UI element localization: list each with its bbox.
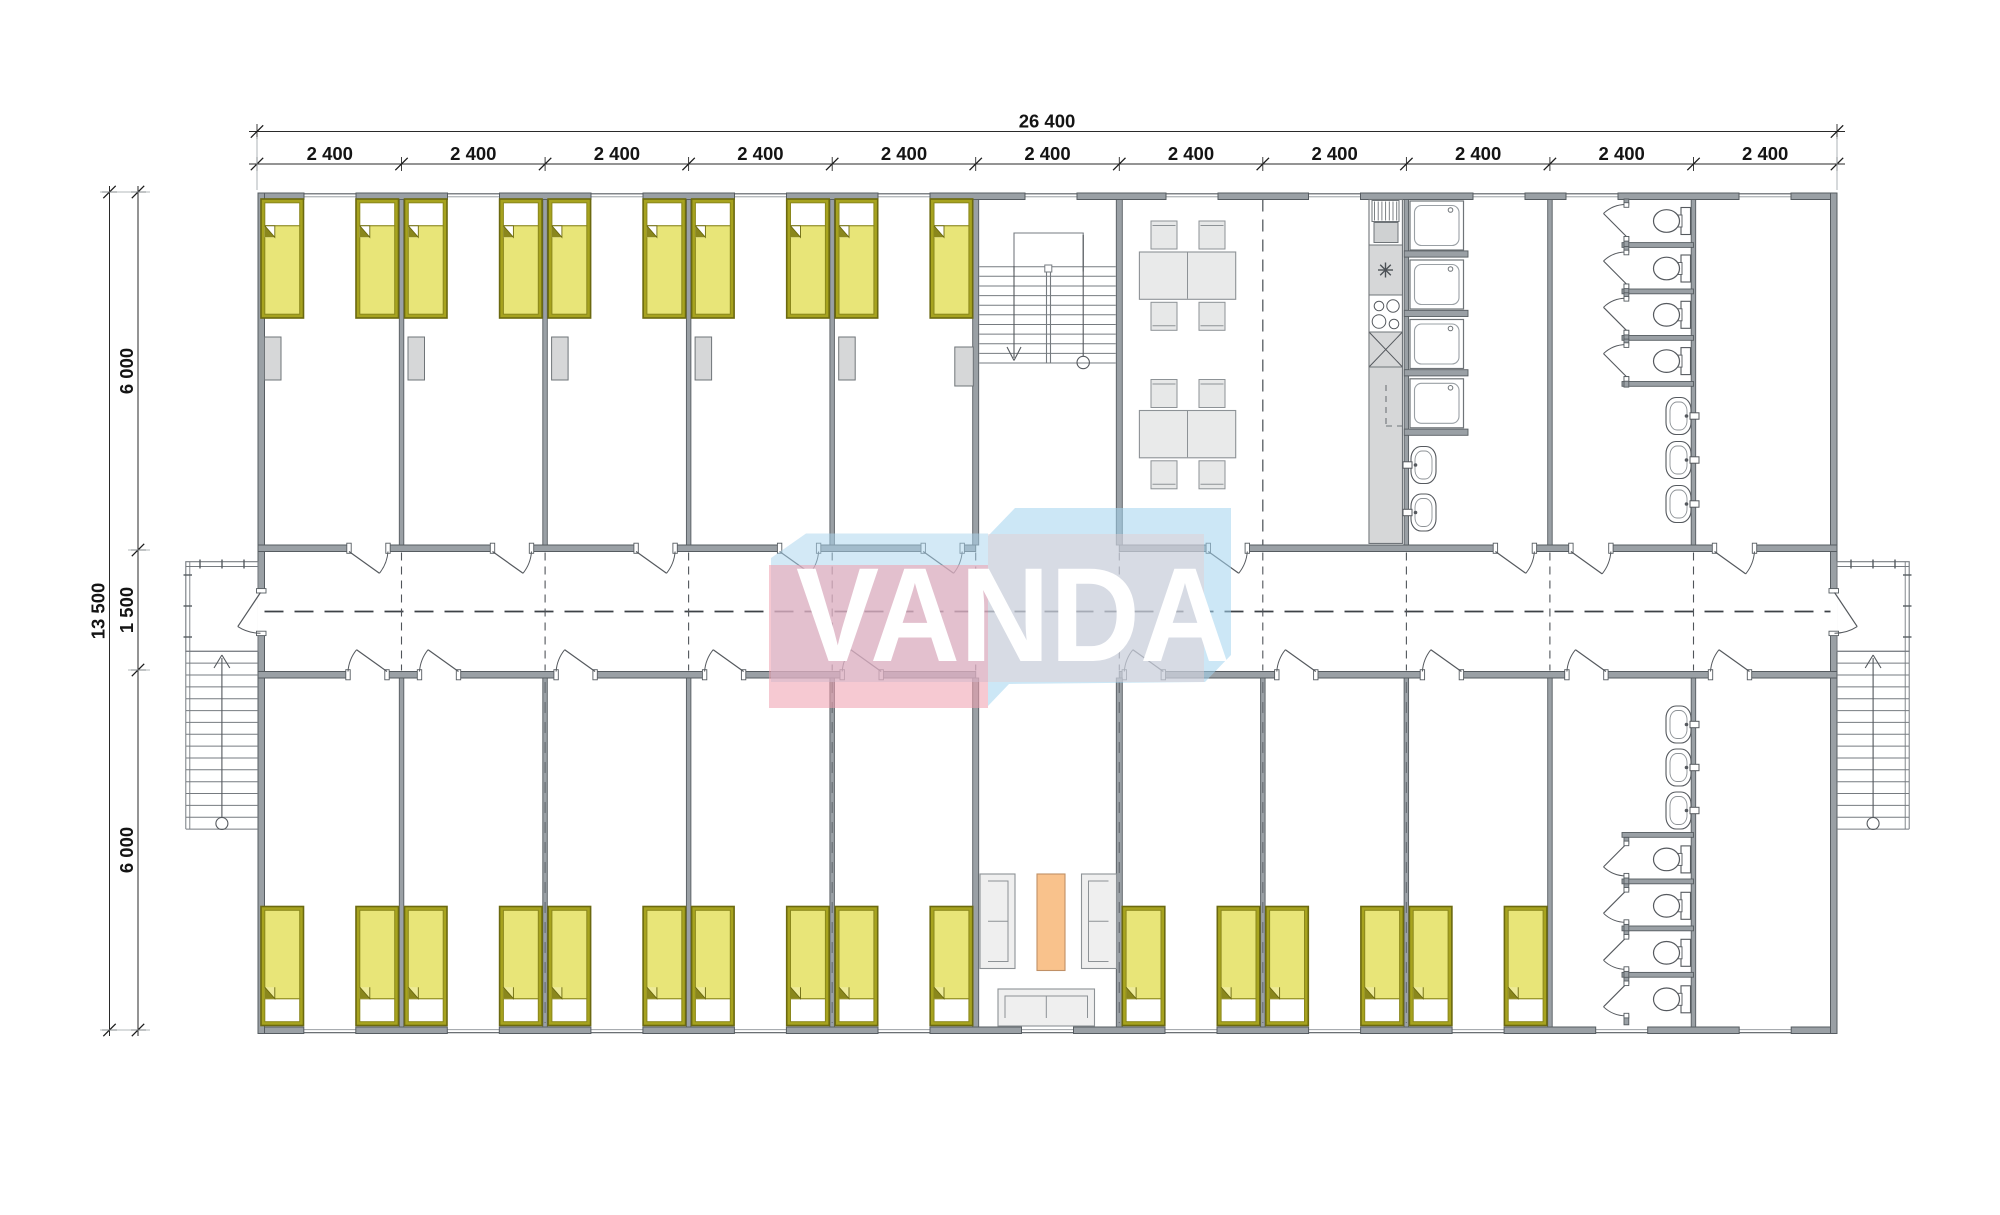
- svg-text:2 400: 2 400: [1742, 143, 1788, 164]
- svg-text:2 400: 2 400: [1455, 143, 1501, 164]
- svg-text:2 400: 2 400: [1024, 143, 1070, 164]
- svg-text:VANDA: VANDA: [796, 541, 1230, 690]
- svg-text:13 500: 13 500: [88, 583, 109, 640]
- svg-text:2 400: 2 400: [737, 143, 783, 164]
- svg-text:6 000: 6 000: [116, 348, 137, 394]
- svg-text:2 400: 2 400: [307, 143, 353, 164]
- svg-text:26 400: 26 400: [1019, 111, 1076, 132]
- svg-text:2 400: 2 400: [1599, 143, 1645, 164]
- svg-text:2 400: 2 400: [1311, 143, 1357, 164]
- svg-text:2 400: 2 400: [450, 143, 496, 164]
- svg-text:2 400: 2 400: [1168, 143, 1214, 164]
- svg-text:1 500: 1 500: [116, 587, 137, 633]
- svg-text:2 400: 2 400: [881, 143, 927, 164]
- svg-text:6 000: 6 000: [116, 827, 137, 873]
- svg-text:2 400: 2 400: [594, 143, 640, 164]
